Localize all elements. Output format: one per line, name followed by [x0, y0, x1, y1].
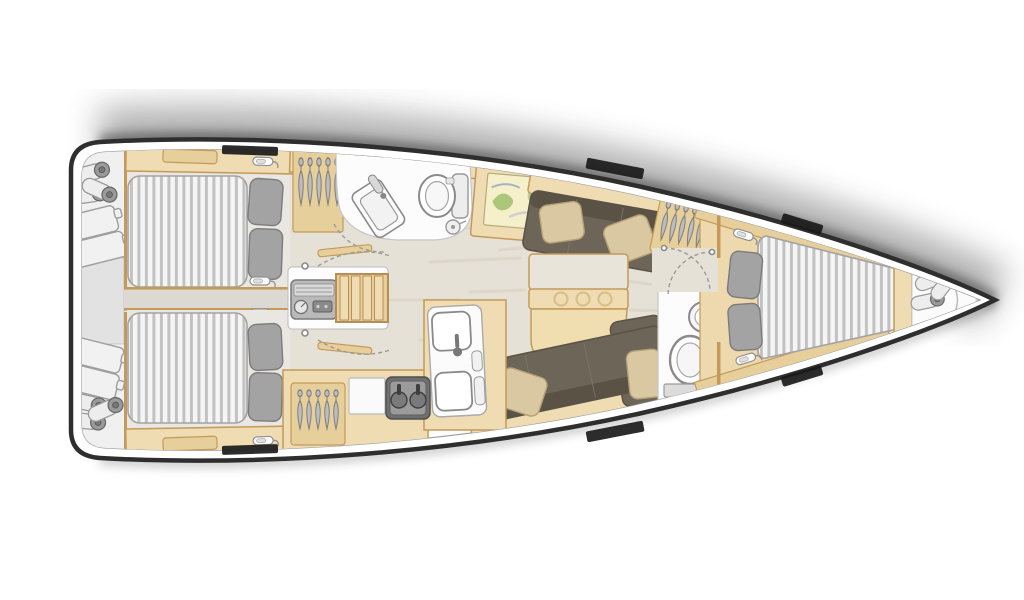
door-hinge — [302, 330, 308, 336]
yacht-floorplan-canvas — [0, 0, 1024, 600]
toilet-icon — [419, 174, 468, 218]
engine-icon — [291, 280, 337, 319]
door-hinge — [302, 263, 308, 269]
aft-cabin-top — [126, 141, 294, 290]
cabinet — [349, 378, 385, 414]
companionway-steps — [336, 274, 388, 322]
pillow — [248, 228, 283, 279]
table-rail — [529, 289, 628, 309]
transom-locker — [79, 258, 124, 344]
berth-mattress — [128, 313, 247, 423]
door-hinge — [710, 250, 715, 255]
deck-hatch — [163, 436, 217, 451]
entry-floor — [652, 248, 718, 292]
pillow — [727, 250, 764, 299]
pillow — [248, 372, 283, 421]
galley-sink-icon — [427, 305, 487, 418]
aft-cabin-bottom — [126, 310, 294, 459]
berth-mattress — [128, 176, 247, 287]
door-hinge — [662, 246, 667, 251]
stove-icon — [386, 377, 430, 419]
pillow — [538, 201, 585, 244]
interior — [60, 141, 976, 459]
yacht-floorplan-svg — [0, 0, 1024, 600]
pillow — [727, 303, 762, 351]
hanging-locker — [291, 383, 345, 445]
pillow — [247, 178, 283, 226]
table-leaf — [529, 254, 628, 290]
deck-hatch — [163, 149, 217, 164]
door-wall — [717, 212, 721, 258]
pillow — [248, 323, 283, 371]
